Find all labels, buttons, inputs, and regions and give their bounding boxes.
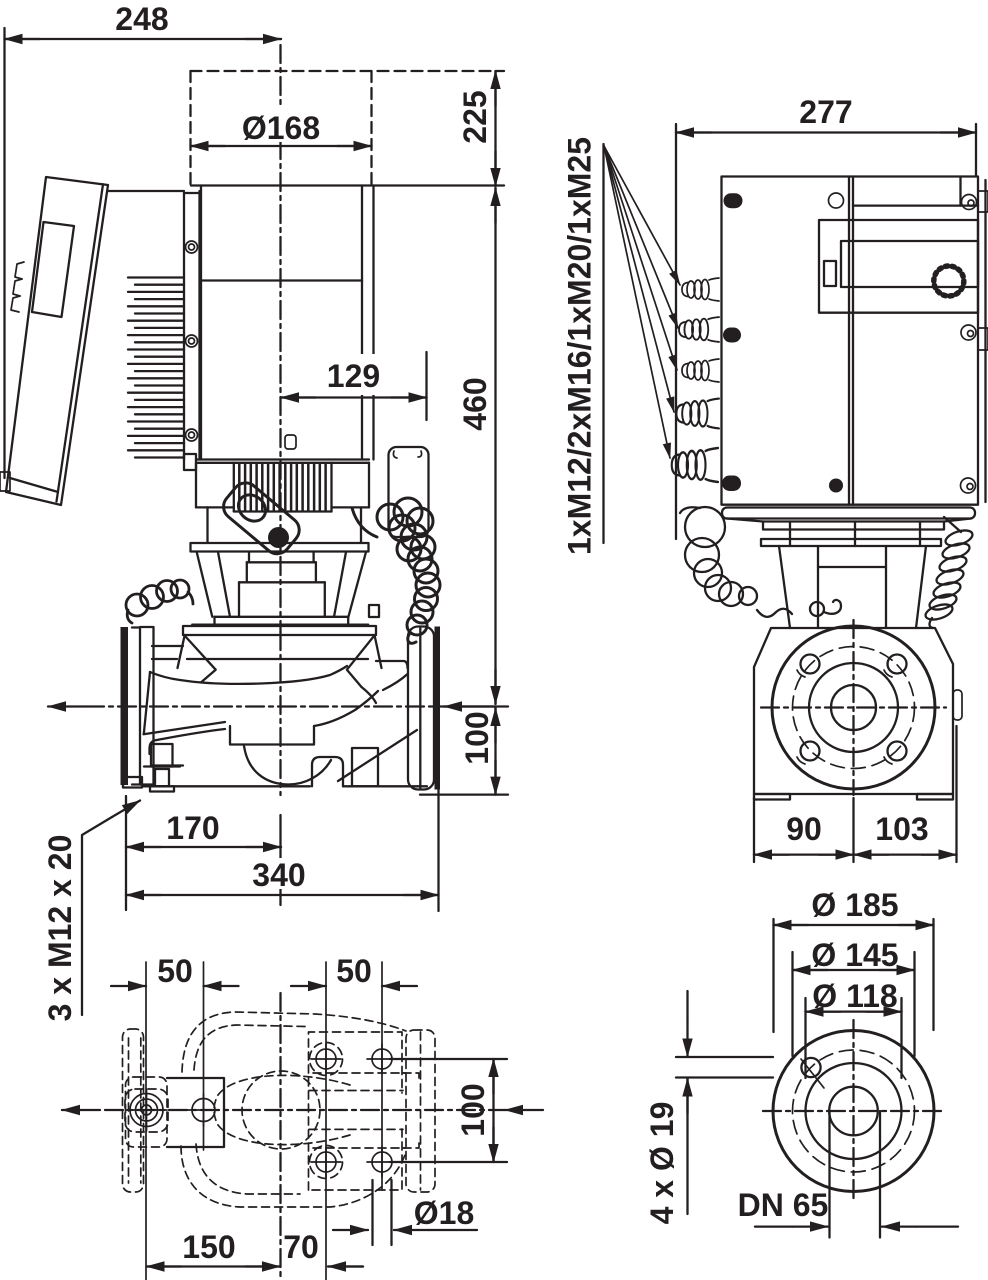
svg-text:Ø 118: Ø 118 [812, 978, 897, 1014]
svg-text:100: 100 [455, 1083, 491, 1136]
svg-text:129: 129 [327, 358, 380, 394]
svg-text:Ø 145: Ø 145 [811, 937, 898, 973]
svg-text:50: 50 [336, 953, 372, 989]
svg-text:225: 225 [457, 90, 493, 143]
svg-text:248: 248 [115, 1, 168, 37]
svg-text:340: 340 [252, 857, 305, 893]
svg-text:70: 70 [283, 1229, 319, 1265]
svg-text:90: 90 [786, 811, 822, 847]
svg-text:103: 103 [875, 811, 928, 847]
svg-text:4 x Ø 19: 4 x Ø 19 [644, 1102, 680, 1225]
svg-text:Ø18: Ø18 [414, 1195, 474, 1231]
svg-text:50: 50 [157, 953, 193, 989]
svg-text:100: 100 [459, 711, 495, 764]
svg-text:150: 150 [182, 1229, 235, 1265]
svg-text:DN 65: DN 65 [738, 1187, 829, 1223]
svg-text:170: 170 [166, 810, 219, 846]
svg-text:277: 277 [799, 94, 852, 130]
svg-text:Ø168: Ø168 [242, 110, 320, 146]
svg-text:3 x M12 x 20: 3 x M12 x 20 [42, 835, 78, 1022]
svg-text:460: 460 [457, 377, 493, 430]
svg-text:Ø 185: Ø 185 [811, 887, 898, 923]
svg-text:1xM12/2xM16/1xM20/1xM25: 1xM12/2xM16/1xM20/1xM25 [562, 137, 598, 555]
